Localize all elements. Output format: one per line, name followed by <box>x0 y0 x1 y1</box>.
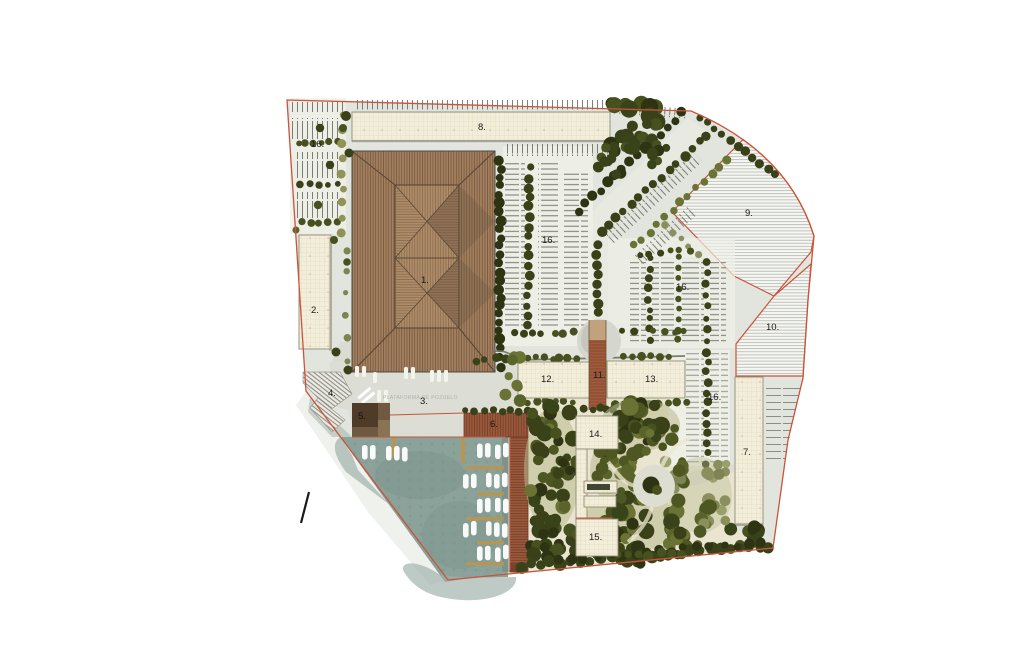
svg-text:14.: 14. <box>589 429 602 440</box>
svg-text:8.: 8. <box>478 122 486 133</box>
svg-text:16.: 16. <box>542 235 555 246</box>
svg-text:6.: 6. <box>490 419 498 430</box>
svg-text:16.: 16. <box>676 282 689 293</box>
svg-text:9.: 9. <box>745 208 753 219</box>
svg-text:16.: 16. <box>708 392 721 403</box>
svg-text:7.: 7. <box>743 447 751 458</box>
svg-text:1.: 1. <box>421 275 429 286</box>
svg-text:3.: 3. <box>420 396 428 407</box>
svg-text:4.: 4. <box>328 388 336 399</box>
svg-text:11.: 11. <box>593 370 606 381</box>
svg-text:15.: 15. <box>589 532 602 543</box>
svg-text:16.: 16. <box>311 139 324 150</box>
svg-text:10.: 10. <box>766 322 779 333</box>
svg-text:2.: 2. <box>311 305 319 316</box>
svg-text:12.: 12. <box>541 374 554 385</box>
svg-text:5.: 5. <box>358 411 366 422</box>
svg-text:13.: 13. <box>645 374 658 385</box>
